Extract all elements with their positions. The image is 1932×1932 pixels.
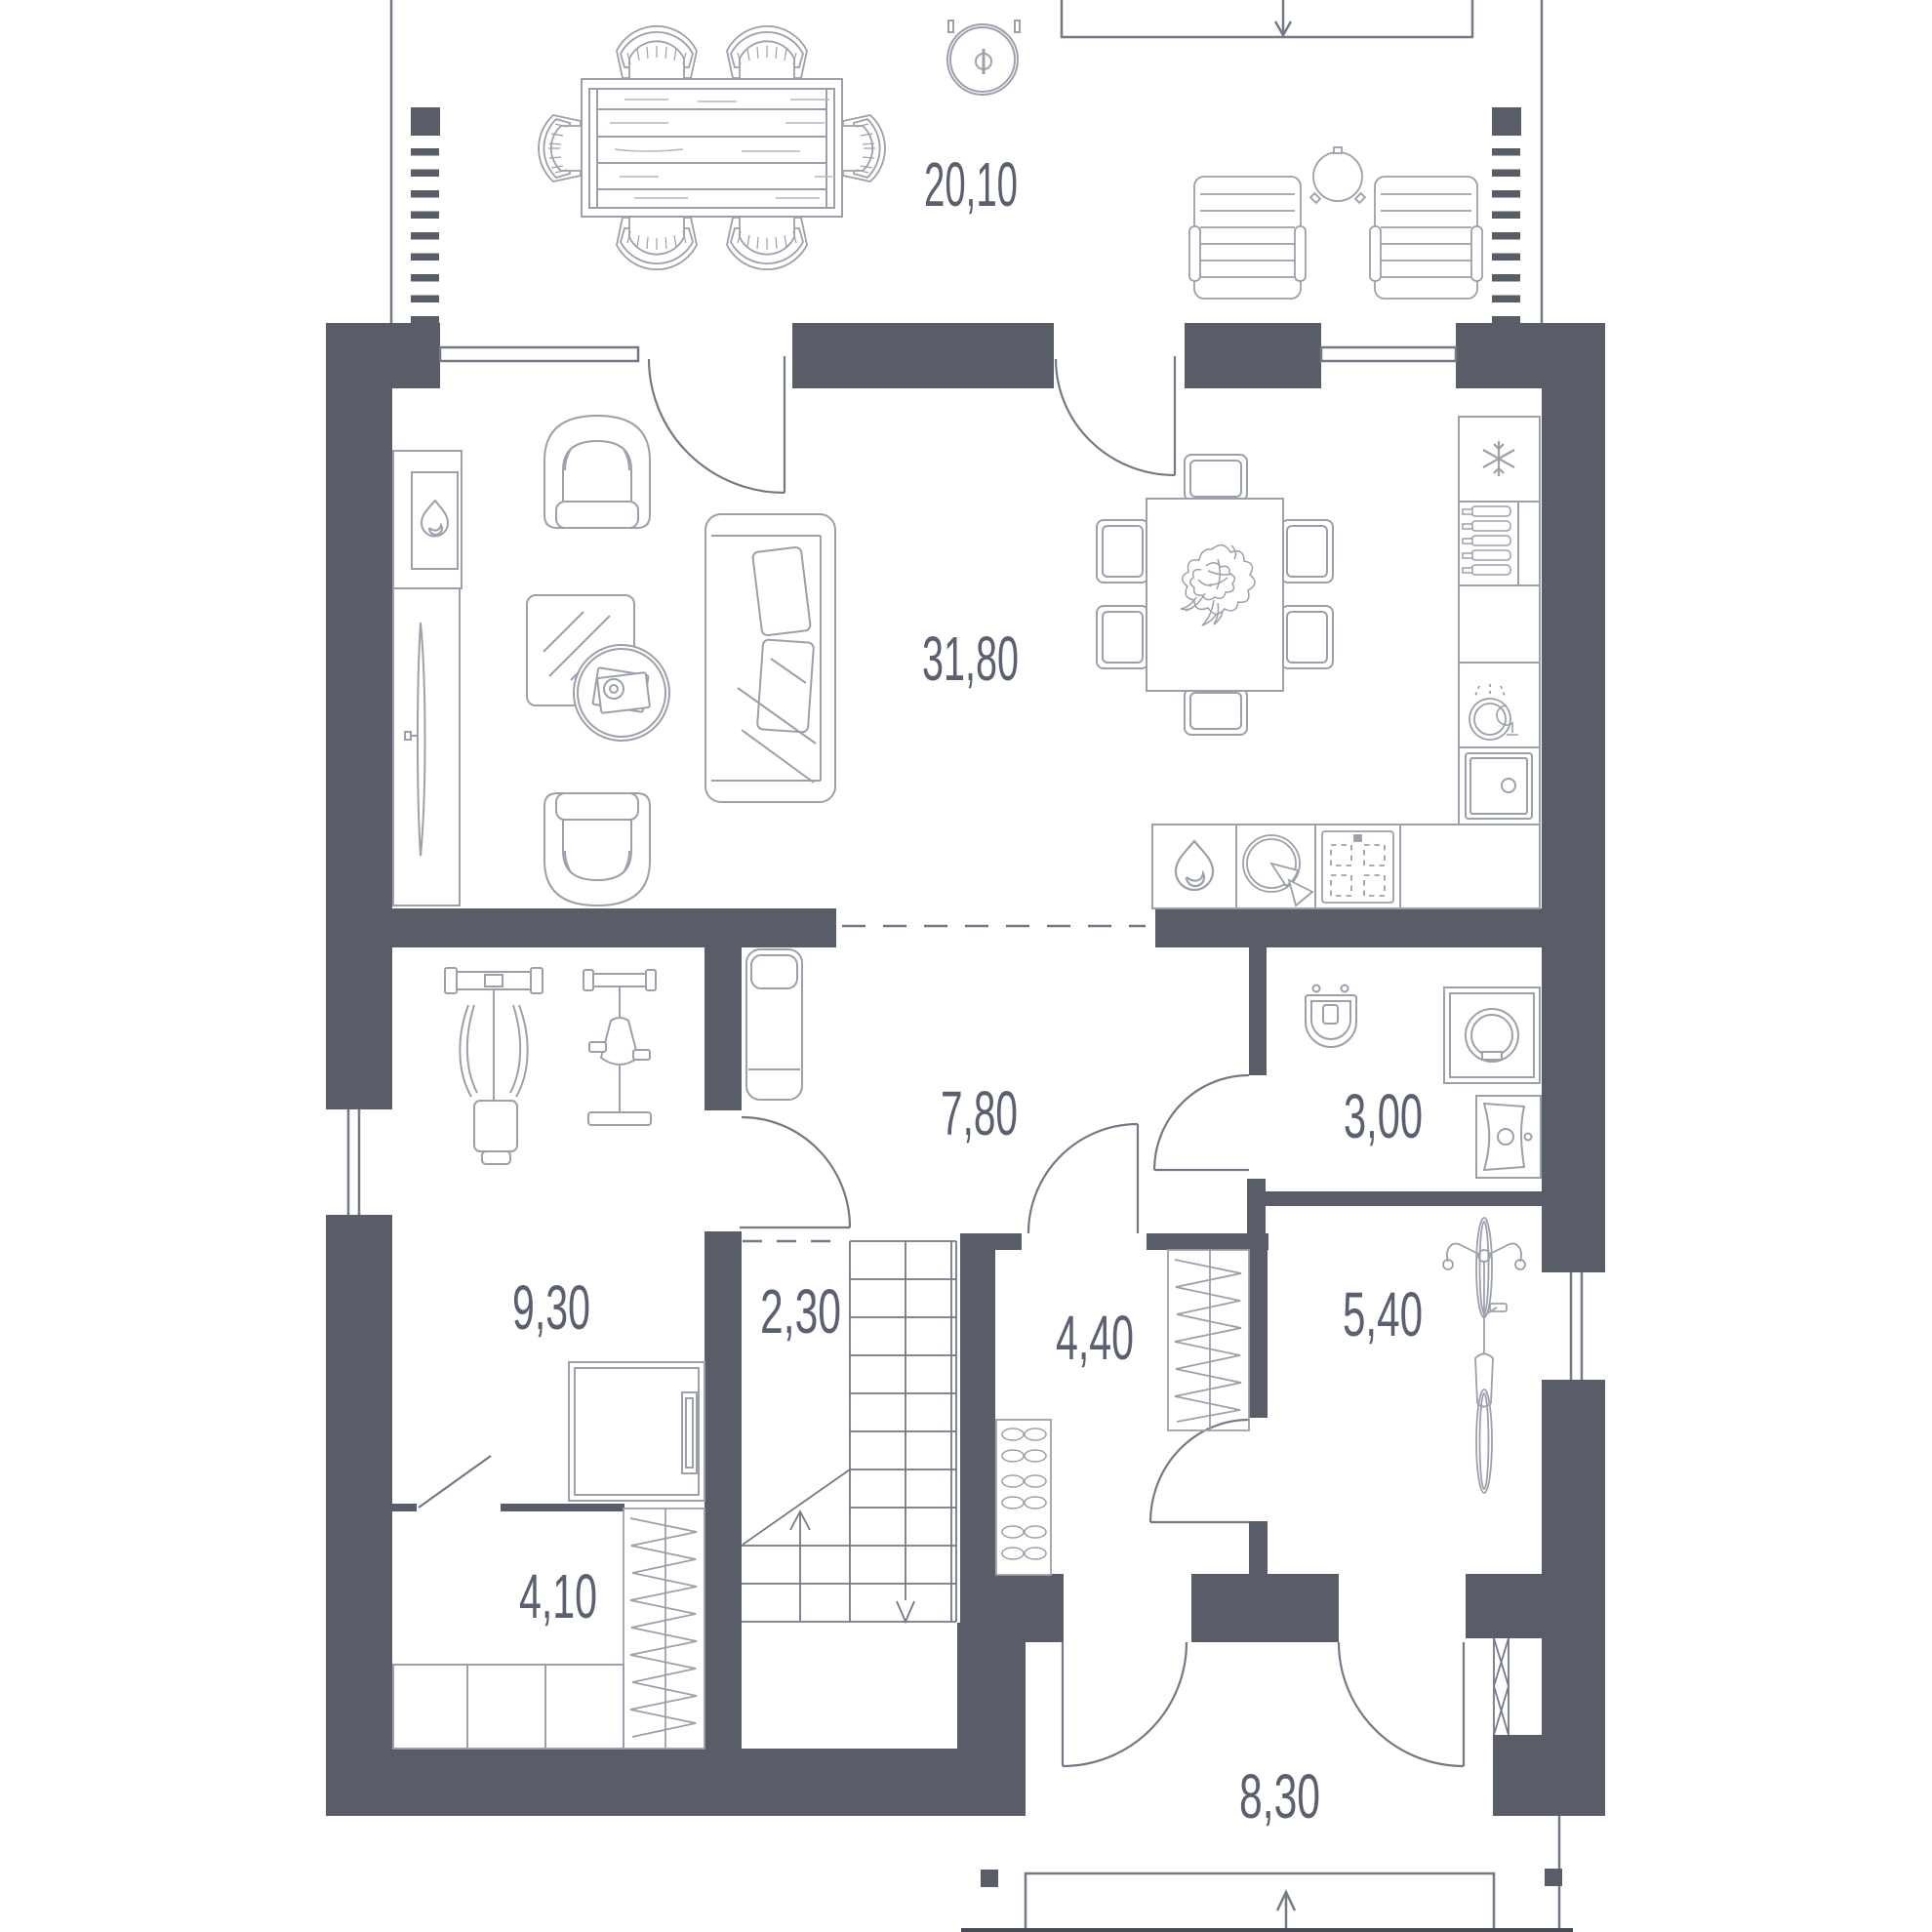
svg-text:4,10: 4,10 (519, 1561, 597, 1631)
svg-text:8,30: 8,30 (1239, 1761, 1320, 1831)
svg-text:2,30: 2,30 (760, 1276, 841, 1347)
svg-text:4,40: 4,40 (1056, 1303, 1134, 1373)
svg-text:3,00: 3,00 (1344, 1081, 1423, 1151)
svg-text:5,40: 5,40 (1343, 1279, 1423, 1349)
svg-text:7,80: 7,80 (941, 1078, 1018, 1148)
svg-text:20,10: 20,10 (924, 149, 1018, 220)
svg-text:9,30: 9,30 (512, 1272, 590, 1343)
svg-text:31,80: 31,80 (922, 624, 1019, 694)
